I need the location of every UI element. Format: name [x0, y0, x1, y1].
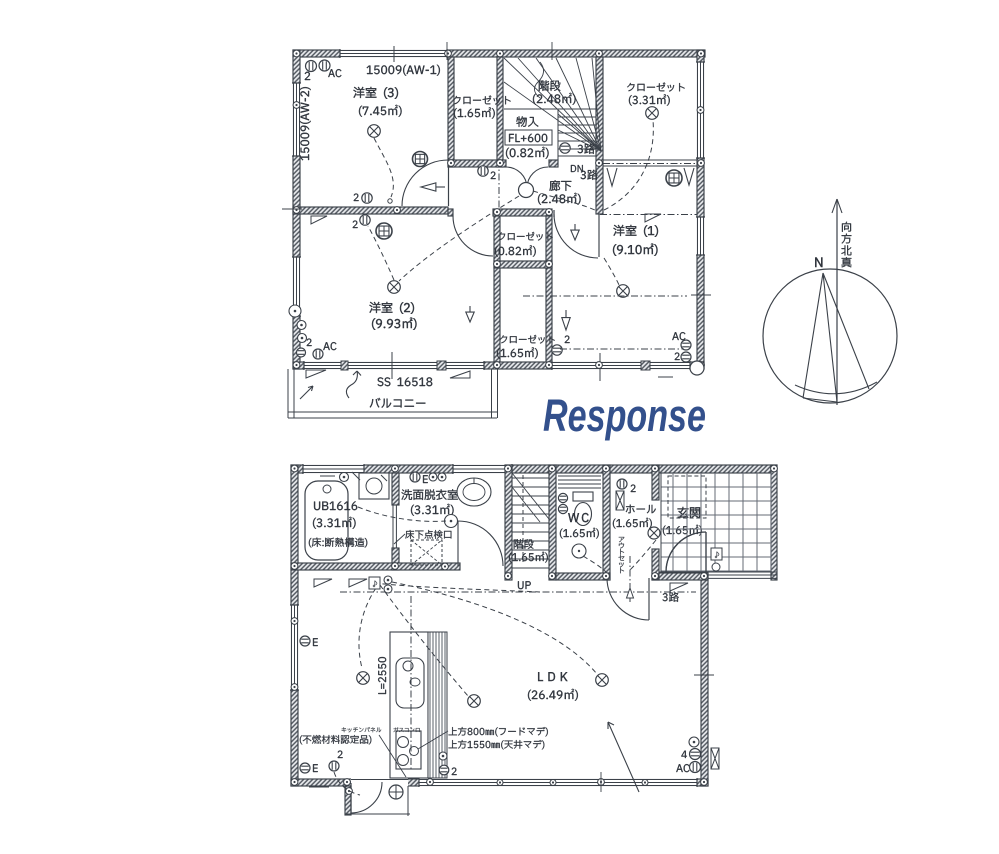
- svg-text:Response: Response: [543, 390, 706, 441]
